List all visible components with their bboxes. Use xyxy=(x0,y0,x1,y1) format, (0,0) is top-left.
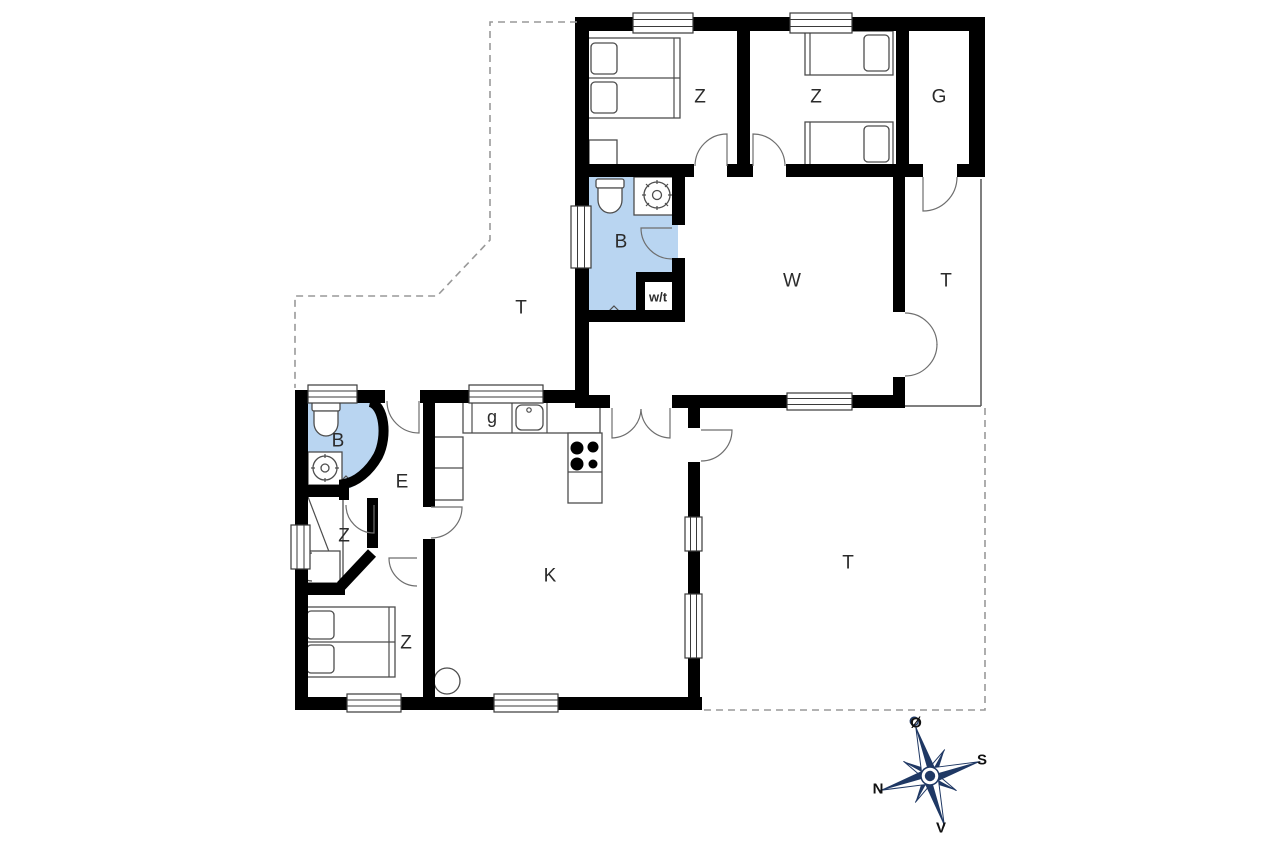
compass-label-west: V xyxy=(936,820,946,837)
closet-northwest xyxy=(589,140,617,167)
door-terrace-double-2 xyxy=(905,344,937,376)
furniture xyxy=(298,31,893,694)
toilet-upper xyxy=(596,179,624,213)
label-washer-dryer: w/t xyxy=(648,290,668,305)
door-living-kitchen-1 xyxy=(612,408,641,438)
window-west-upper xyxy=(571,206,591,268)
window-south-2 xyxy=(494,694,558,712)
washbasin-lower xyxy=(308,452,342,485)
single-bed-north-2 xyxy=(805,122,893,166)
double-bed-southwest xyxy=(303,607,395,677)
door-terrace-double-1 xyxy=(905,313,937,345)
compass-label-north: N xyxy=(873,781,884,798)
label-living-room: W xyxy=(783,271,801,292)
door-bedroom-nw xyxy=(695,134,727,166)
walls xyxy=(295,17,985,710)
window-south-1 xyxy=(347,694,401,712)
compass-rose: Ø S N V xyxy=(863,703,994,840)
window-bath-lower xyxy=(308,385,357,403)
label-storage: G xyxy=(932,87,947,108)
label-bathroom-upper: B xyxy=(615,232,628,253)
covered-terrace-outline xyxy=(905,179,981,406)
door-bedroom-sw xyxy=(389,558,417,586)
label-bedroom-northwest: Z xyxy=(694,87,706,108)
door-entrance xyxy=(387,401,419,433)
window-kitchen-east-1 xyxy=(685,517,702,551)
door-storage xyxy=(923,177,957,211)
terrace-boundary-northwest xyxy=(295,22,577,388)
double-bed-northwest xyxy=(587,38,680,118)
door-bedroom-n xyxy=(753,134,785,166)
label-bedroom-southwest: Z xyxy=(400,633,412,654)
round-table xyxy=(434,668,460,694)
compass-label-south: S xyxy=(977,752,987,769)
window-kitchen-north xyxy=(469,385,543,403)
door-kitchen-terrace xyxy=(701,430,732,461)
floorplan: T Z Z G B w/t W T B g E Z K Z T xyxy=(0,0,1280,853)
window-north-2 xyxy=(790,13,852,33)
single-bed-north-1 xyxy=(805,31,893,75)
window-living-south xyxy=(787,393,852,410)
label-bedroom-north: Z xyxy=(810,87,822,108)
label-bathroom-lower: B xyxy=(332,431,345,452)
door-living-kitchen-2 xyxy=(641,408,670,438)
compass-label-east: Ø xyxy=(910,715,922,732)
label-wardrobe: g xyxy=(487,407,497,427)
label-bedroom-west: Z xyxy=(338,526,350,547)
label-terrace-covered: T xyxy=(940,271,952,292)
window-west-lower xyxy=(291,525,310,569)
label-terrace-southeast: T xyxy=(842,553,854,574)
door-hall-kitchen xyxy=(431,507,462,538)
label-kitchen: K xyxy=(544,566,557,587)
label-entrance: E xyxy=(396,472,409,493)
label-terrace-upper-left: T xyxy=(515,298,527,319)
window-kitchen-east-2 xyxy=(685,594,702,658)
window-north-1 xyxy=(633,13,693,33)
kitchen-sink xyxy=(516,405,543,430)
